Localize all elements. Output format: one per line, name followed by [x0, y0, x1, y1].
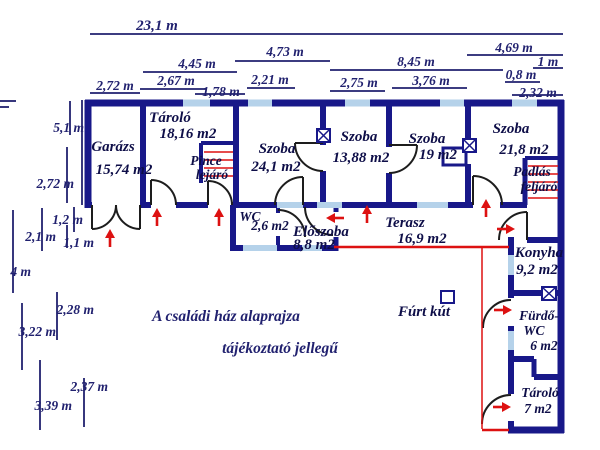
- flue-symbol: [463, 139, 476, 152]
- room-area: 21,8 m2: [498, 142, 549, 158]
- dim-label: 1,2 m: [52, 212, 83, 227]
- room-area: 9,2 m2: [516, 262, 558, 278]
- dim-label: 5,1 m: [53, 120, 84, 135]
- dim-label: 4,45 m: [177, 56, 216, 71]
- dim-label: 2,37 m: [69, 379, 108, 394]
- caption-line-1: A családi ház alaprajza: [151, 308, 300, 325]
- dim-label: 2,32 m: [518, 85, 557, 100]
- room-name: WC: [523, 323, 545, 338]
- room-area: 19 m2: [419, 147, 457, 163]
- room-name: Tároló: [521, 385, 559, 400]
- dim-label: 3,39 m: [33, 398, 72, 413]
- dim-label: 2,1 m: [24, 229, 56, 244]
- dim-label: 3,76 m: [411, 73, 450, 88]
- dim-label: 2,28 m: [55, 302, 94, 317]
- room-area: 8,8 m2: [293, 237, 335, 253]
- room-name: Konyha: [514, 245, 564, 261]
- floor-plan-drawing: 23,1 m 4,45 m 4,73 m 2,67 m 2,21 m 2,72 …: [0, 0, 600, 450]
- room-area: 7 m2: [524, 401, 552, 416]
- dim-label: 2,72 m: [35, 176, 74, 191]
- dim-label: 4,69 m: [494, 40, 533, 55]
- room-area: 16,9 m2: [397, 231, 447, 247]
- dim-label: 8,45 m: [397, 54, 435, 69]
- room-area: 2,6 m2: [250, 218, 289, 233]
- room-name: Garázs: [91, 139, 135, 155]
- room-name: Fürdő-: [518, 308, 559, 323]
- dim-label: 0,8 m: [506, 67, 537, 82]
- dim-label: 1,1 m: [63, 235, 94, 250]
- dim-label: 2,75 m: [339, 75, 378, 90]
- room-area: 24,1 m2: [250, 159, 301, 175]
- room-name: Szoba: [341, 129, 378, 145]
- dim-label: 23,1 m: [135, 18, 178, 34]
- room-name: Szoba: [259, 141, 296, 157]
- dim-label: 2,21 m: [250, 72, 289, 87]
- room-area: 15,74 m2: [96, 162, 153, 178]
- dim-label: 4 m: [9, 264, 31, 279]
- room-name: Tároló: [149, 110, 191, 126]
- dim-label: 2,67 m: [156, 73, 195, 88]
- flue-symbol: [542, 287, 556, 300]
- room-name: Terasz: [385, 215, 425, 231]
- dim-label: 3,22 m: [17, 324, 56, 339]
- room-name: Szoba: [493, 121, 530, 137]
- well-icon: [441, 291, 454, 303]
- room-name: feljáró: [521, 179, 558, 194]
- room-area: 13,88 m2: [333, 150, 390, 166]
- well-label: Fúrt kút: [397, 304, 451, 320]
- dim-label: 2,72 m: [95, 78, 134, 93]
- room-name: Padlás: [513, 164, 551, 179]
- dim-label: 1 m: [538, 54, 559, 69]
- room-name: lejáró: [196, 167, 228, 182]
- dim-label: 4,73 m: [265, 44, 304, 59]
- caption-line-2: tájékoztató jellegű: [222, 340, 339, 357]
- room-name: Pince: [190, 153, 222, 168]
- dim-label: 1,78 m: [202, 84, 240, 99]
- room-name: Szoba: [409, 131, 446, 147]
- room-area: 6 m2: [530, 338, 558, 353]
- flue-symbol: [317, 129, 330, 142]
- room-area: 18,16 m2: [160, 126, 217, 142]
